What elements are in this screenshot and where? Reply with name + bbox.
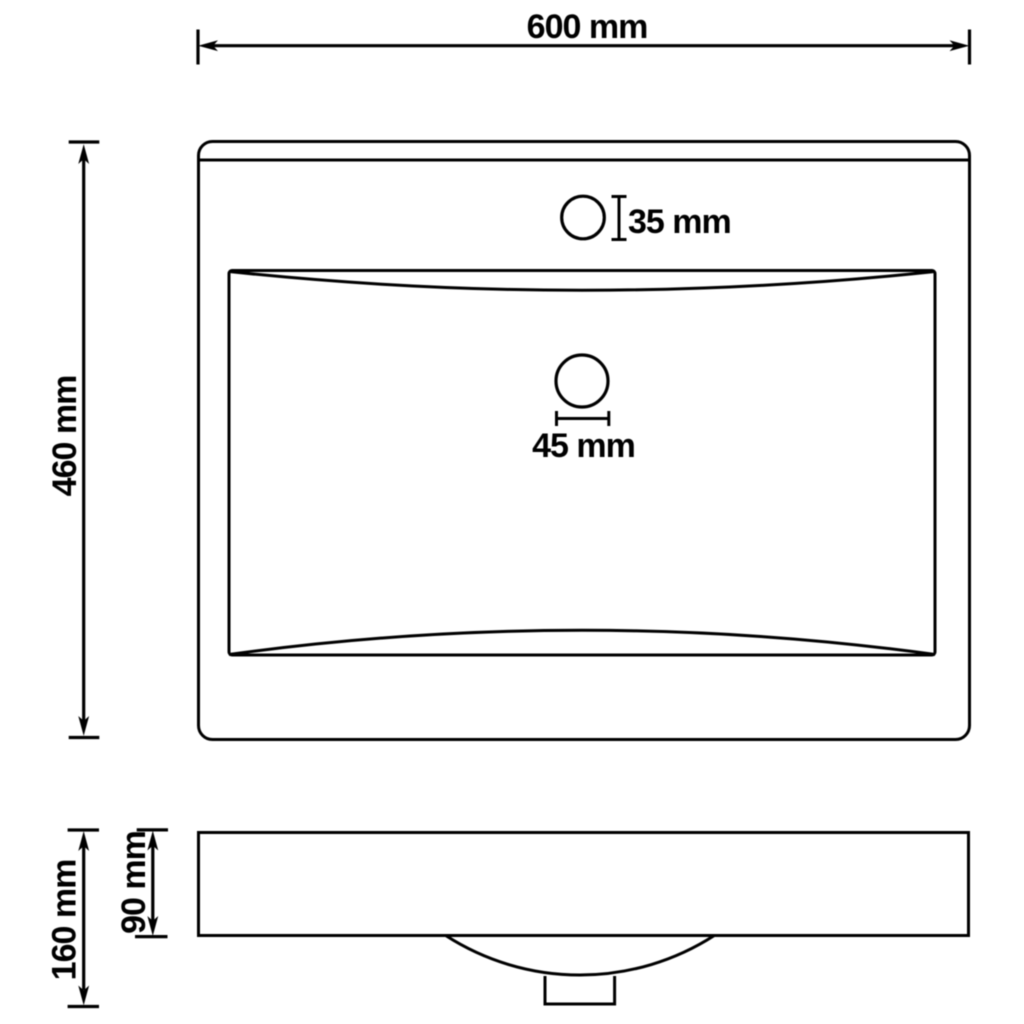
svg-text:160 mm: 160 mm bbox=[46, 860, 84, 981]
svg-text:35 mm: 35 mm bbox=[628, 203, 731, 241]
svg-text:90 mm: 90 mm bbox=[115, 831, 153, 934]
svg-text:45 mm: 45 mm bbox=[532, 427, 635, 465]
svg-text:460 mm: 460 mm bbox=[46, 376, 84, 497]
svg-text:600 mm: 600 mm bbox=[527, 8, 648, 46]
